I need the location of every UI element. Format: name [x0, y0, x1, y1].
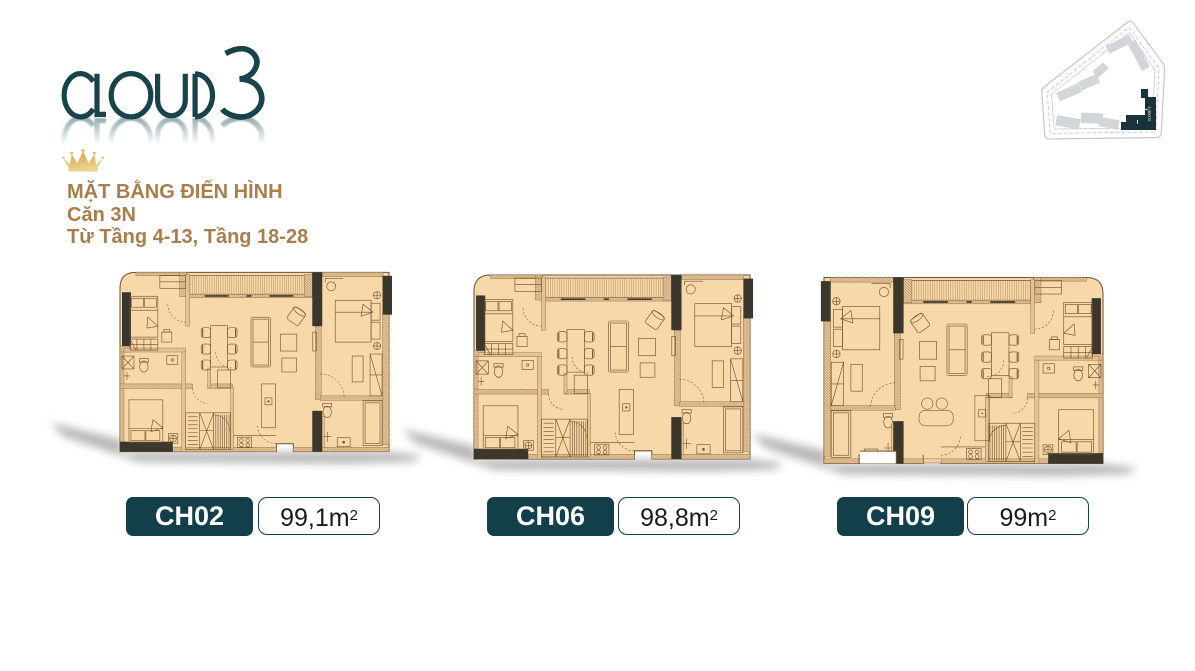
svg-text:CLOUD 3: CLOUD 3 [1148, 107, 1152, 122]
